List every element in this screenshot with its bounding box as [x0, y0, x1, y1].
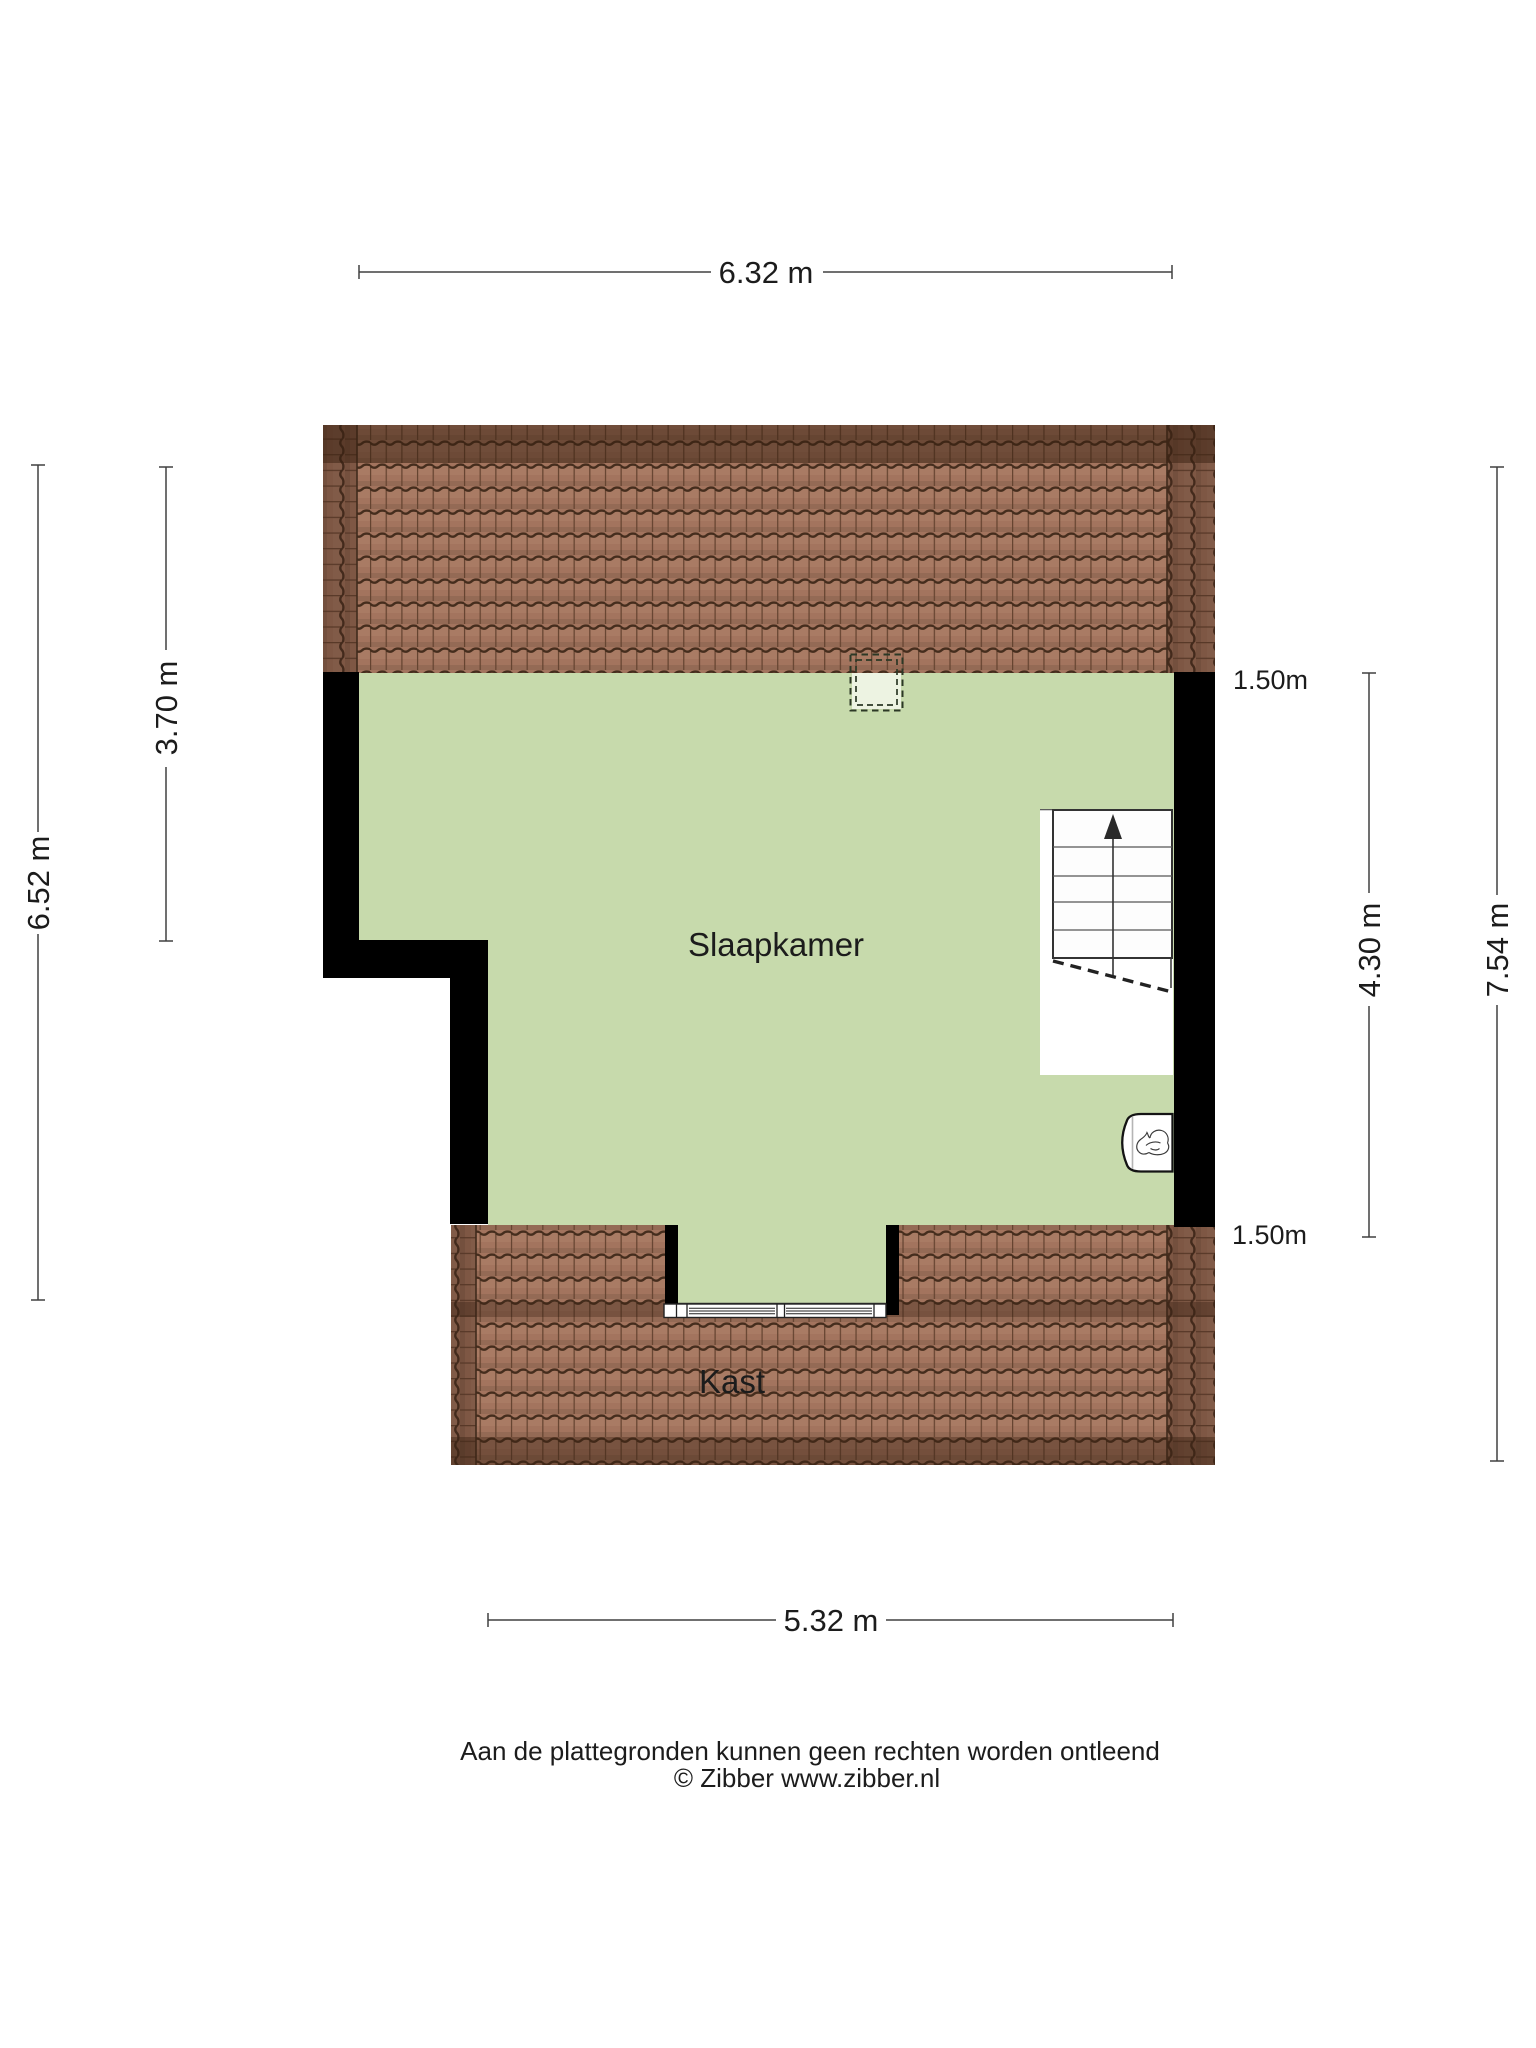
- svg-text:© Zibber www.zibber.nl: © Zibber www.zibber.nl: [674, 1763, 940, 1793]
- svg-text:4.30 m: 4.30 m: [1352, 903, 1387, 998]
- svg-text:Kast: Kast: [699, 1363, 765, 1400]
- svg-text:5.32 m: 5.32 m: [784, 1603, 879, 1638]
- svg-text:6.52 m: 6.52 m: [21, 836, 56, 931]
- svg-text:1.50m: 1.50m: [1233, 665, 1308, 695]
- svg-text:Slaapkamer: Slaapkamer: [688, 926, 864, 963]
- svg-text:1.50m: 1.50m: [1232, 1220, 1307, 1250]
- svg-text:3.70 m: 3.70 m: [149, 661, 184, 756]
- svg-text:7.54 m: 7.54 m: [1480, 903, 1515, 998]
- svg-text:Aan de plattegronden kunnen ge: Aan de plattegronden kunnen geen rechten…: [460, 1736, 1160, 1766]
- svg-text:6.32 m: 6.32 m: [719, 255, 814, 290]
